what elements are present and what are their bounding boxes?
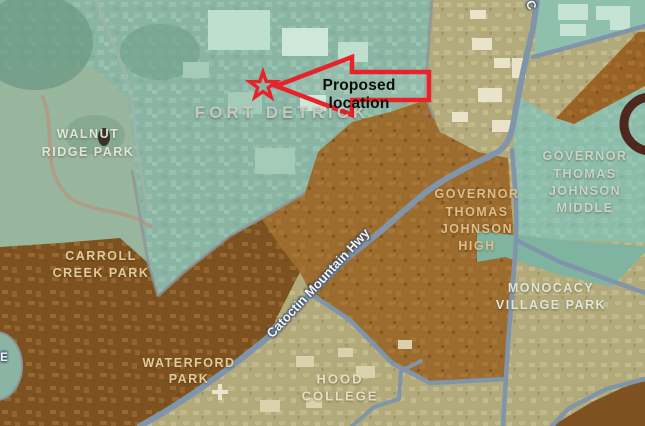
- pond-dot: [98, 128, 110, 146]
- forest-patch: [65, 115, 125, 155]
- map-canvas[interactable]: WALNUT RIDGE PARK FORT DETRICK CARROLL C…: [0, 0, 645, 426]
- map-layers: [0, 0, 645, 426]
- label-partial-left-edge: E: [0, 352, 8, 364]
- proposed-location-label: Proposed location: [294, 77, 424, 113]
